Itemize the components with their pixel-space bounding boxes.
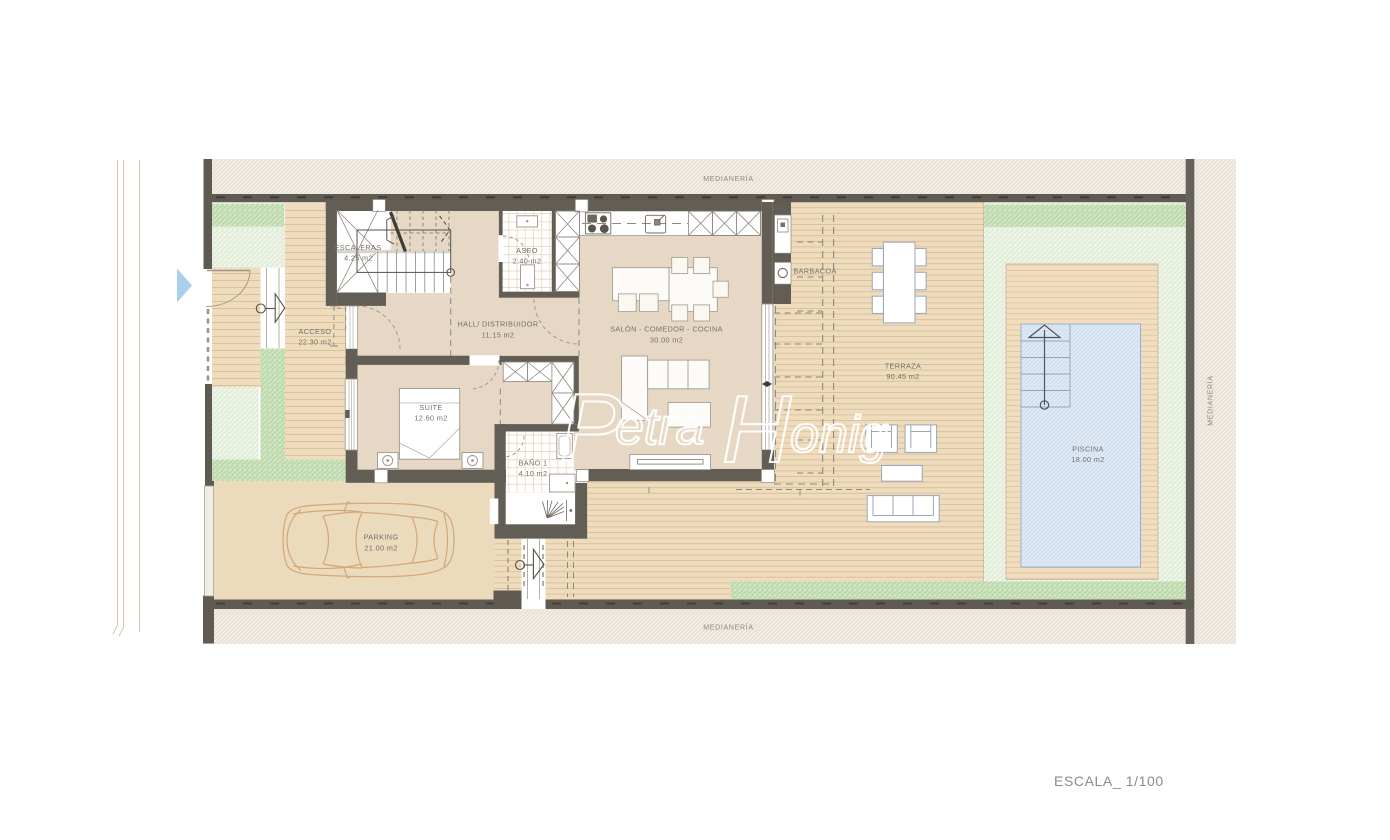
svg-text:22.30 m2: 22.30 m2	[298, 338, 331, 347]
svg-text:4.10 m2: 4.10 m2	[519, 469, 548, 478]
svg-text:HALL/ DISTRIBUIDOR: HALL/ DISTRIBUIDOR	[458, 320, 539, 329]
svg-text:ACCESO: ACCESO	[299, 327, 332, 336]
svg-text:90.45 m2: 90.45 m2	[886, 372, 919, 381]
svg-text:PARKING: PARKING	[364, 533, 399, 542]
svg-text:MEDIANERÍA: MEDIANERÍA	[703, 174, 754, 183]
svg-text:30.00 m2: 30.00 m2	[650, 336, 683, 345]
svg-text:MEDIANERÍA: MEDIANERÍA	[1206, 375, 1215, 426]
svg-text:H: H	[722, 376, 792, 483]
svg-text:PISCINA: PISCINA	[1072, 445, 1104, 454]
svg-text:2.40 m2: 2.40 m2	[513, 257, 542, 266]
svg-text:21.00 m2: 21.00 m2	[364, 544, 397, 553]
svg-text:TERRAZA: TERRAZA	[885, 362, 922, 371]
svg-text:ASEO: ASEO	[516, 246, 538, 255]
svg-text:SUITE: SUITE	[419, 403, 442, 412]
svg-text:BARBACOA: BARBACOA	[793, 267, 836, 276]
svg-text:12.60 m2: 12.60 m2	[414, 414, 447, 423]
svg-text:11.15 m2: 11.15 m2	[482, 331, 515, 340]
svg-text:ESCALERAS: ESCALERAS	[335, 243, 382, 252]
svg-text:SALÓN - COMEDOR - COCINA: SALÓN - COMEDOR - COCINA	[610, 325, 723, 334]
svg-text:etra: etra	[615, 398, 705, 456]
svg-text:MEDIANERÍA: MEDIANERÍA	[703, 623, 754, 632]
svg-text:BAÑO 1: BAÑO 1	[519, 459, 548, 468]
svg-text:18.00 m2: 18.00 m2	[1071, 455, 1104, 464]
svg-text:ESCALA_ 1/100: ESCALA_ 1/100	[1054, 773, 1164, 789]
svg-text:onig: onig	[790, 406, 888, 464]
svg-text:4.25 m2: 4.25 m2	[344, 254, 373, 263]
